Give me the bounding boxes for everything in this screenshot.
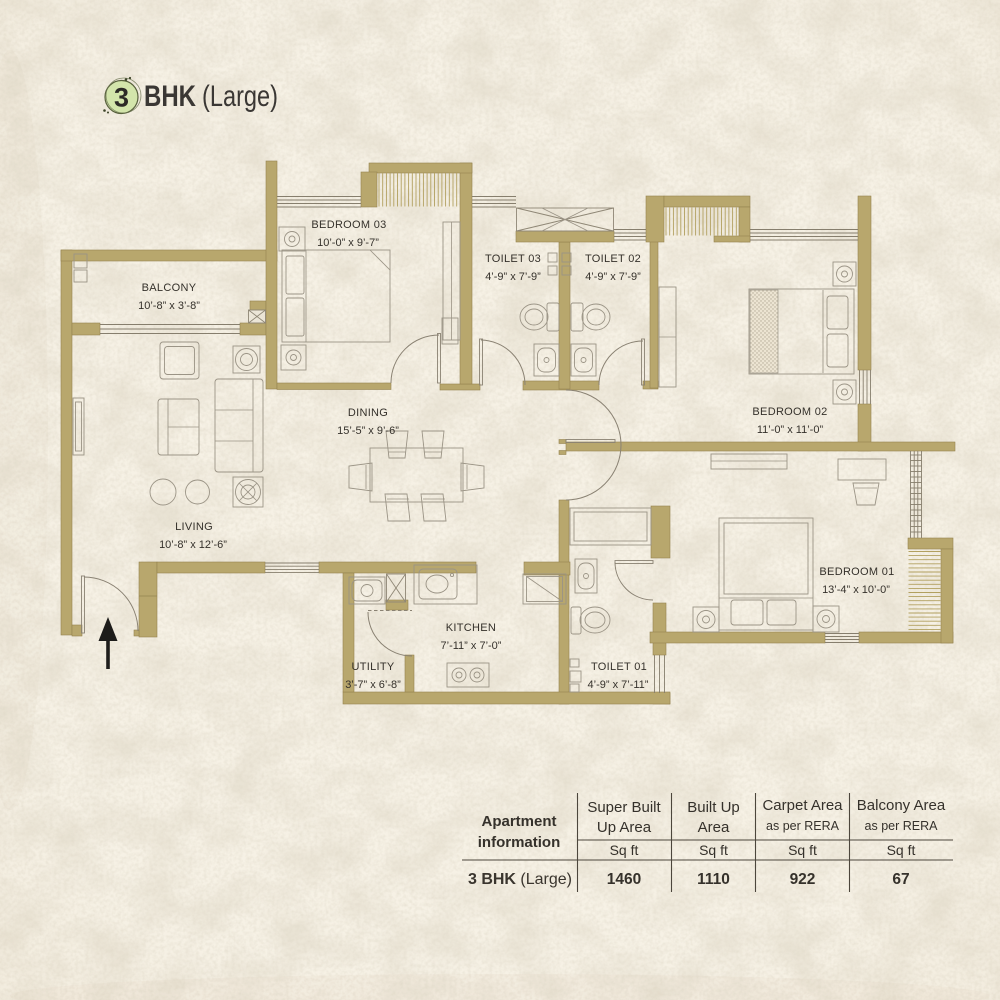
svg-text:TOILET 01: TOILET 01: [591, 661, 647, 673]
svg-text:Super Built: Super Built: [587, 799, 661, 816]
svg-text:Up Area: Up Area: [597, 819, 652, 836]
svg-text:BEDROOM 03: BEDROOM 03: [311, 219, 386, 231]
svg-text:as per RERA: as per RERA: [766, 819, 840, 833]
svg-text:Area: Area: [698, 819, 730, 836]
svg-text:Sq ft: Sq ft: [699, 842, 728, 858]
svg-text:KITCHEN: KITCHEN: [446, 622, 496, 634]
svg-text:TOILET 02: TOILET 02: [585, 253, 641, 265]
svg-text:10’-8” x 12’-6”: 10’-8” x 12’-6”: [159, 539, 227, 551]
svg-text:3 BHK (Large): 3 BHK (Large): [468, 871, 572, 888]
svg-text:4’-9” x 7’-9”: 4’-9” x 7’-9”: [485, 271, 541, 283]
svg-text:1110: 1110: [697, 871, 730, 888]
svg-text:4’-9” x 7’-11”: 4’-9” x 7’-11”: [588, 679, 649, 691]
svg-text:LIVING: LIVING: [175, 521, 213, 533]
svg-text:DINING: DINING: [348, 407, 388, 419]
svg-text:1460: 1460: [607, 871, 641, 888]
svg-text:67: 67: [892, 871, 909, 888]
svg-text:Balcony Area: Balcony Area: [857, 797, 946, 814]
svg-text:UTILITY: UTILITY: [351, 661, 394, 673]
svg-text:922: 922: [790, 871, 816, 888]
svg-text:13’-4” x 10’-0”: 13’-4” x 10’-0”: [822, 584, 890, 596]
svg-text:4’-9” x 7’-9”: 4’-9” x 7’-9”: [585, 271, 641, 283]
svg-text:Sq ft: Sq ft: [788, 842, 817, 858]
svg-text:3’-7” x 6’-8”: 3’-7” x 6’-8”: [345, 679, 401, 691]
svg-text:11’-0” x 11’-0”: 11’-0” x 11’-0”: [757, 424, 824, 436]
svg-text:Sq ft: Sq ft: [887, 842, 916, 858]
svg-text:BHK(Large): BHK(Large): [144, 80, 278, 113]
svg-text:BALCONY: BALCONY: [142, 282, 197, 294]
svg-text:15’-5” x 9’-6”: 15’-5” x 9’-6”: [337, 425, 399, 437]
svg-text:Carpet Area: Carpet Area: [762, 797, 843, 814]
svg-text:10’-0” x 9’-7”: 10’-0” x 9’-7”: [317, 237, 379, 249]
svg-text:Apartment: Apartment: [481, 813, 556, 830]
svg-text:10’-8” x 3’-8”: 10’-8” x 3’-8”: [138, 300, 200, 312]
svg-text:BEDROOM 01: BEDROOM 01: [819, 566, 894, 578]
svg-text:information: information: [478, 834, 561, 851]
svg-text:as per RERA: as per RERA: [865, 819, 939, 833]
svg-text:BEDROOM 02: BEDROOM 02: [752, 406, 827, 418]
svg-text:TOILET 03: TOILET 03: [485, 253, 541, 265]
svg-text:Sq ft: Sq ft: [610, 842, 639, 858]
svg-text:Built Up: Built Up: [687, 799, 740, 816]
svg-text:3: 3: [114, 83, 129, 113]
svg-text:7’-11” x 7’-0”: 7’-11” x 7’-0”: [441, 640, 502, 652]
